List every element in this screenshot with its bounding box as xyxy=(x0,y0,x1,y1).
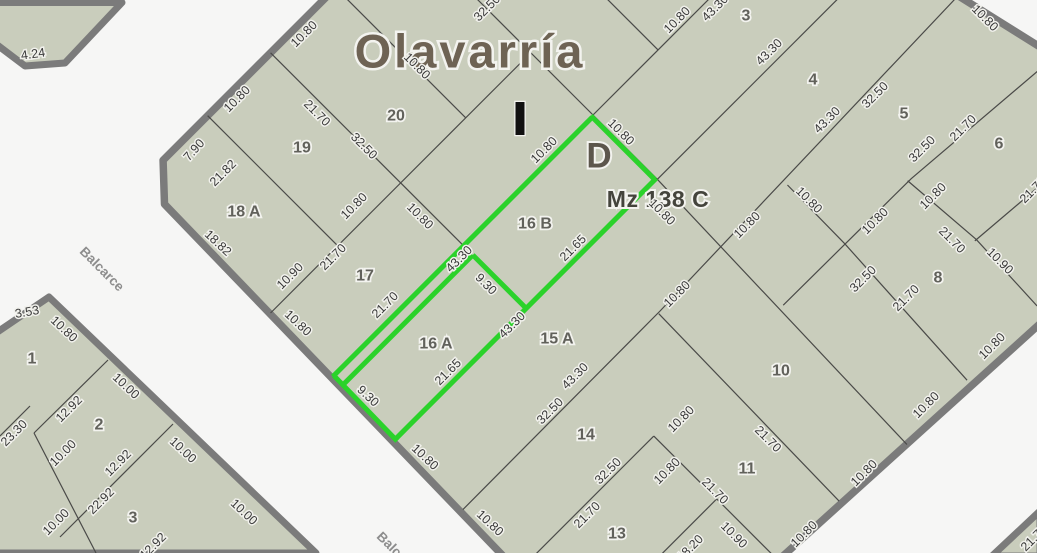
svg-text:11: 11 xyxy=(739,461,756,478)
svg-text:3: 3 xyxy=(129,510,138,527)
svg-text:13: 13 xyxy=(608,526,626,543)
svg-text:5: 5 xyxy=(900,106,909,123)
svg-text:Olavarría: Olavarría xyxy=(355,25,586,78)
svg-text:3: 3 xyxy=(742,8,751,25)
svg-text:19: 19 xyxy=(293,140,311,157)
svg-text:18 A: 18 A xyxy=(227,204,261,221)
svg-text:4: 4 xyxy=(809,72,818,89)
svg-text:2: 2 xyxy=(95,417,104,434)
svg-text:20: 20 xyxy=(387,108,405,125)
svg-text:10: 10 xyxy=(772,363,790,380)
svg-text:17: 17 xyxy=(356,268,374,285)
svg-text:14: 14 xyxy=(577,427,595,444)
svg-text:15 A: 15 A xyxy=(540,331,574,348)
svg-text:D: D xyxy=(586,137,611,176)
svg-text:16 B: 16 B xyxy=(518,216,552,233)
svg-text:6: 6 xyxy=(995,136,1004,153)
svg-text:8: 8 xyxy=(934,270,943,287)
svg-text:16 A: 16 A xyxy=(419,336,453,353)
svg-text:1: 1 xyxy=(28,351,37,368)
